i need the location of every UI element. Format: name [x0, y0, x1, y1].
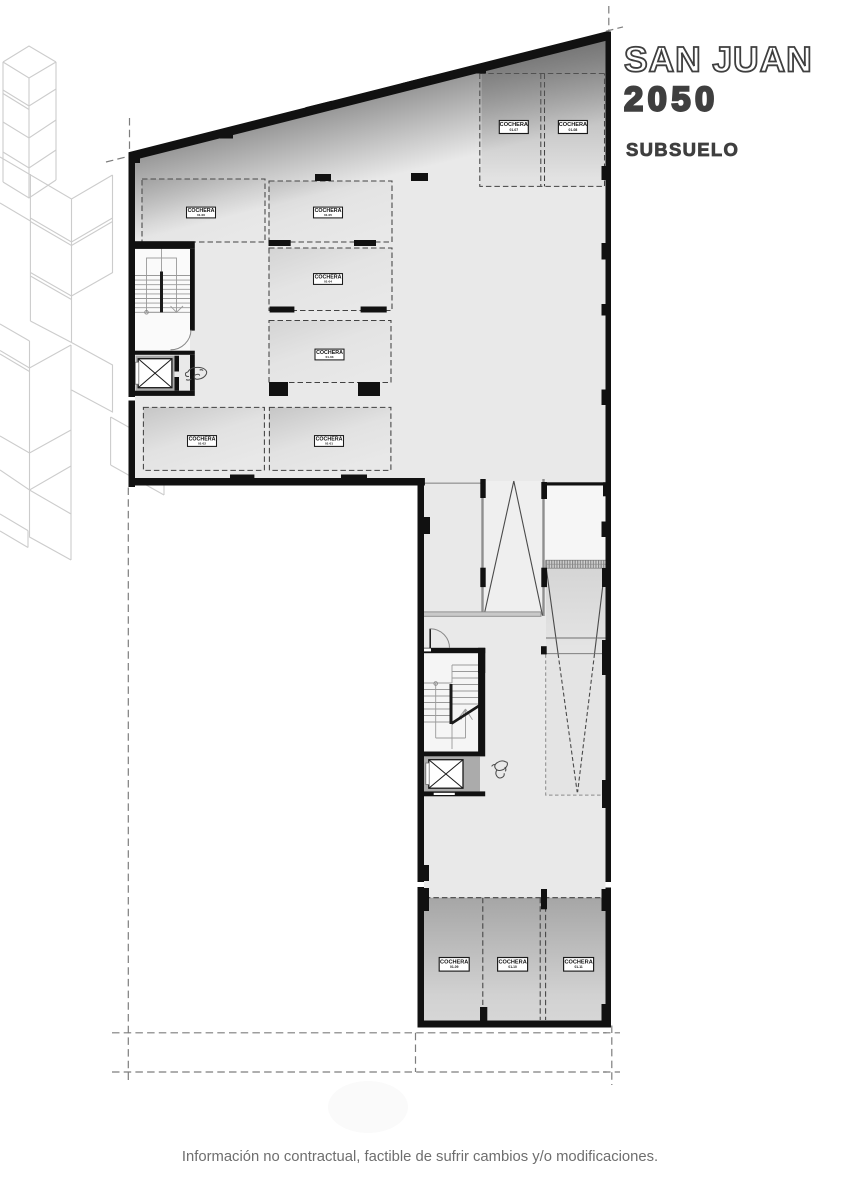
svg-text:01-08: 01-08	[569, 128, 578, 132]
svg-text:SUBSUELO: SUBSUELO	[626, 139, 739, 160]
svg-text:2050: 2050	[624, 81, 719, 119]
svg-text:Información no contractual, fa: Información no contractual, factible de …	[182, 1149, 658, 1165]
svg-text:01-10: 01-10	[508, 965, 517, 969]
svg-text:01-01: 01-01	[325, 441, 333, 445]
svg-text:01-09: 01-09	[450, 965, 459, 969]
svg-text:01-05: 01-05	[324, 213, 332, 217]
svg-text:01-11: 01-11	[574, 965, 582, 969]
svg-text:01-06: 01-06	[197, 213, 205, 217]
svg-text:01-03: 01-03	[326, 355, 334, 359]
svg-text:01-02: 01-02	[198, 441, 206, 445]
svg-text:SAN JUAN: SAN JUAN	[624, 40, 813, 80]
svg-text:01-04: 01-04	[324, 279, 332, 283]
svg-text:01-07: 01-07	[509, 128, 518, 132]
